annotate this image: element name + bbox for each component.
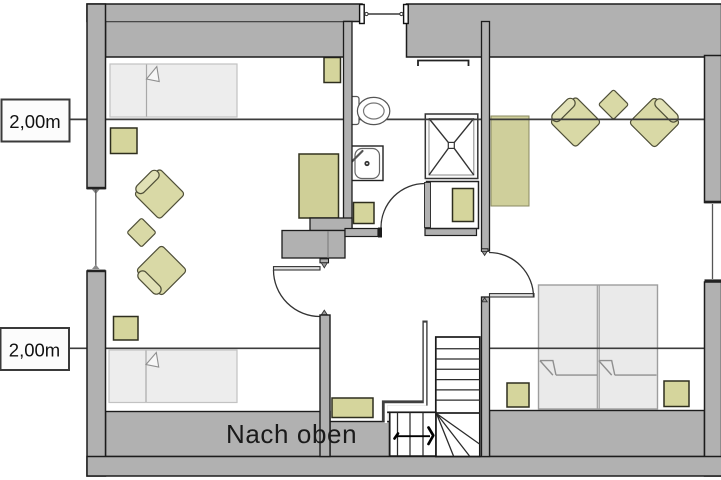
svg-text:2,00m: 2,00m bbox=[9, 340, 60, 361]
svg-text:2,00m: 2,00m bbox=[9, 111, 60, 132]
svg-text:Nach oben: Nach oben bbox=[226, 419, 357, 449]
